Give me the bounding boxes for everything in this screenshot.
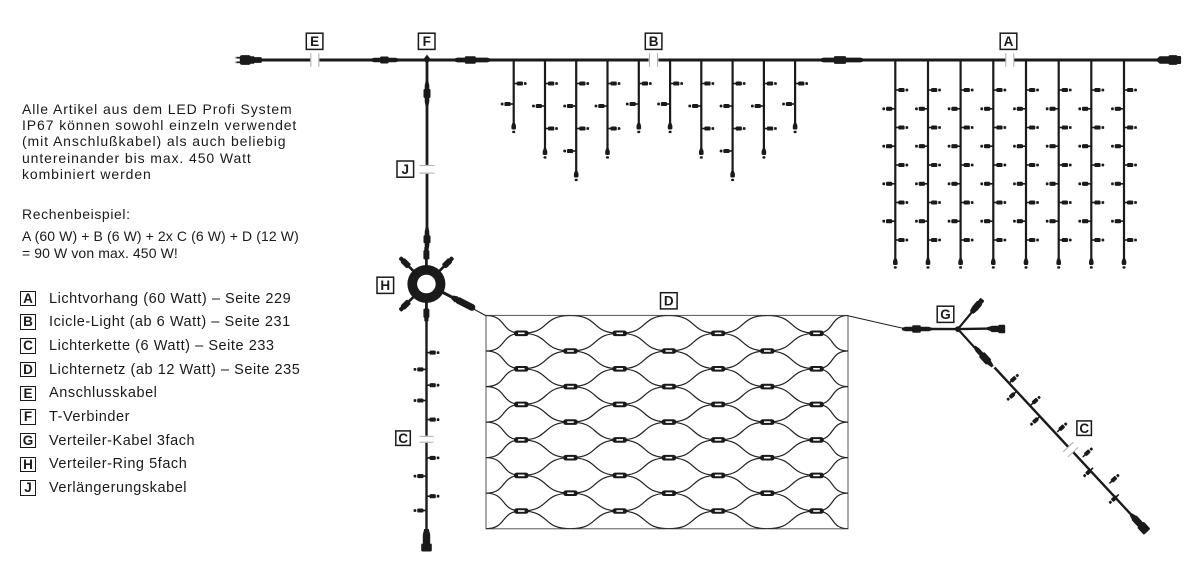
svg-text:C: C [398, 431, 408, 446]
svg-text:A: A [1004, 34, 1014, 49]
svg-text:F: F [423, 34, 431, 49]
svg-text:C: C [1079, 421, 1089, 436]
svg-text:B: B [649, 34, 659, 49]
svg-text:J: J [402, 162, 410, 177]
svg-text:G: G [940, 307, 951, 322]
svg-text:H: H [380, 278, 390, 293]
svg-text:D: D [664, 294, 674, 309]
svg-text:E: E [310, 34, 319, 49]
